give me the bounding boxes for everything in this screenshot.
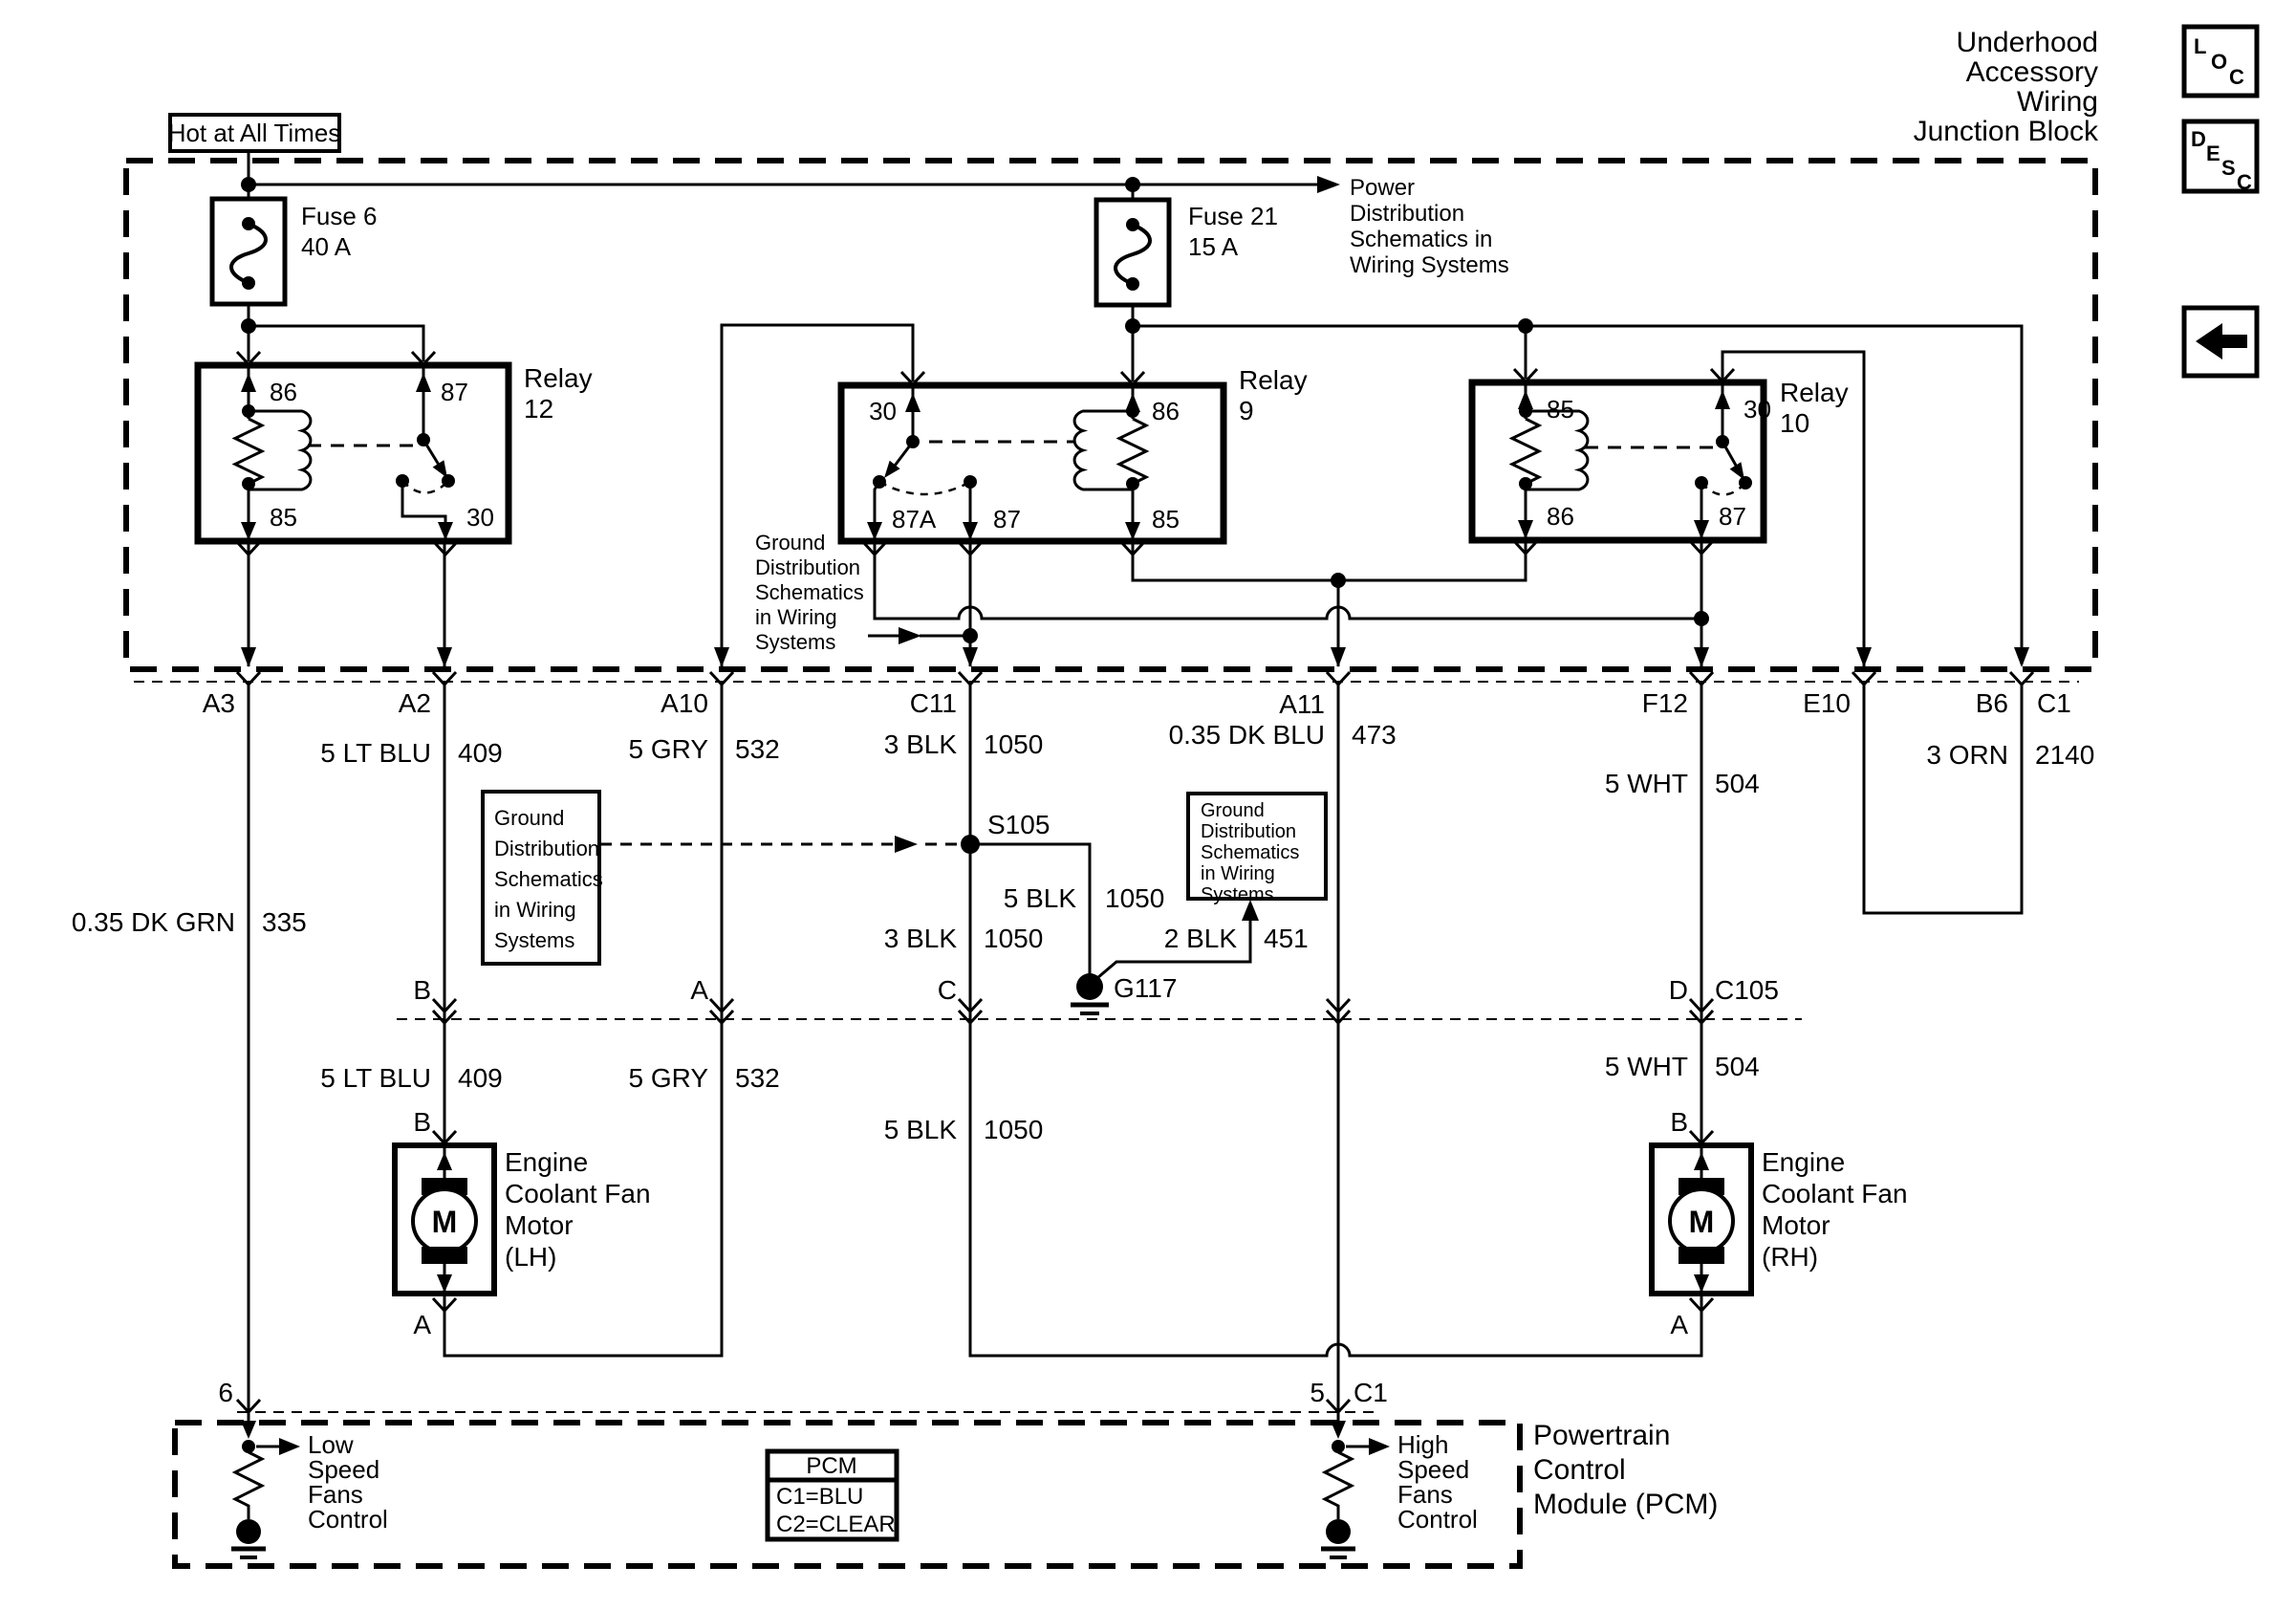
row2-a: A [690, 977, 708, 1004]
wire-1050-color-upper: 3 BLK [884, 731, 957, 758]
fan-rh-pin-a: A [1670, 1312, 1688, 1338]
pcm-high-ground-symbol [1321, 1519, 1355, 1557]
power-note-line3: Schematics in [1350, 228, 1492, 251]
jb-ground-note-line5: Systems [755, 632, 835, 653]
fuse21-symbol [1116, 225, 1150, 284]
wire-1050-3blk-id-lower: 1050 [984, 925, 1043, 952]
wire-504-id-lower: 504 [1715, 1054, 1760, 1080]
row2-c105: C105 [1715, 977, 1779, 1004]
jb-ground-note-line1: Ground [755, 533, 825, 554]
row1-c11: C11 [910, 690, 957, 717]
wire-451-id: 451 [1264, 925, 1309, 952]
row1-c1: C1 [2037, 690, 2071, 717]
pcm-high-line1: High [1397, 1432, 1448, 1457]
fan-lh-motor-m: M [432, 1207, 458, 1237]
desc-icon-letter-d: D [2191, 127, 2206, 152]
fuse6-symbol [231, 224, 266, 283]
fan-rh-name-line1: Engine [1762, 1149, 1845, 1176]
pcm-low-ground-symbol [231, 1519, 266, 1557]
row1-a10: A10 [661, 690, 708, 717]
power-note-line1: Power [1350, 177, 1415, 200]
s105-label: S105 [987, 812, 1050, 838]
relay9-pin85: 85 [1152, 507, 1180, 532]
ground-box-right-line5: Systems [1201, 885, 1274, 904]
fan-rh-pin-b: B [1670, 1109, 1688, 1136]
power-note-line2: Distribution [1350, 203, 1464, 226]
desc-icon-letter-c: C [2237, 170, 2252, 195]
fan-lh-pin-b: B [413, 1109, 431, 1136]
connector-row-lines [134, 682, 2079, 1412]
relay10-pin30: 30 [1744, 397, 1771, 422]
pcm-low-line3: Fans [308, 1482, 363, 1507]
jb-ground-note-line3: Schematics [755, 582, 864, 603]
wire-1050-5blk-id-lower: 1050 [984, 1117, 1043, 1143]
relay12-name: Relay [524, 365, 593, 392]
ground-box-left-line5: Systems [494, 930, 574, 951]
wire-504-color-upper: 5 WHT [1605, 771, 1688, 797]
pcm-high-line3: Fans [1397, 1482, 1453, 1507]
jb-title-line3: Wiring [2017, 88, 2098, 117]
relay10-pin86: 86 [1547, 504, 1574, 529]
pcm-high-line4: Control [1397, 1507, 1478, 1532]
wire-1050-5blk-color: 5 BLK [1004, 885, 1076, 912]
pcm-legend-c1: C1=BLU [776, 1486, 863, 1509]
power-note-line4: Wiring Systems [1350, 254, 1509, 277]
fan-rh-name-line2: Coolant Fan [1762, 1181, 1908, 1207]
relay9-name: Relay [1239, 367, 1308, 394]
desc-icon-letter-s: S [2221, 156, 2236, 181]
fan-lh-pin-a: A [413, 1312, 431, 1338]
fan-lh-name-line2: Coolant Fan [505, 1181, 651, 1207]
wire-409-id-lower: 409 [458, 1065, 503, 1092]
relay10-pin87: 87 [1719, 504, 1746, 529]
wire-451-color: 2 BLK [1164, 925, 1237, 952]
relay9-num: 9 [1239, 398, 1254, 424]
row1-e10: E10 [1803, 690, 1851, 717]
row2-c: C [938, 977, 957, 1004]
relay10-num: 10 [1780, 410, 1809, 437]
relay12-num: 12 [524, 396, 553, 423]
g117-ground-symbol [1071, 973, 1109, 1013]
ground-box-right-line3: Schematics [1201, 843, 1299, 862]
wire-504-color-lower: 5 WHT [1605, 1054, 1688, 1080]
fuse6-name: Fuse 6 [301, 204, 378, 228]
back-arrow-icon[interactable] [2184, 308, 2257, 376]
relay12-pin30: 30 [466, 505, 494, 530]
pcm-name-line3: Module (PCM) [1533, 1490, 1718, 1519]
fan-rh-name-line3: Motor [1762, 1212, 1830, 1239]
jb-title-line4: Junction Block [1914, 118, 2098, 146]
wire-473-id: 473 [1352, 722, 1397, 749]
row2-d: D [1669, 977, 1688, 1004]
fuse6-rating: 40 A [301, 234, 351, 259]
pcm-low-line4: Control [308, 1507, 388, 1532]
ground-box-left-line4: in Wiring [494, 900, 576, 921]
wire-2140-color: 3 ORN [1926, 742, 2008, 769]
pcm-name-line1: Powertrain [1533, 1422, 1670, 1450]
pcm-legend-title: PCM [806, 1455, 856, 1478]
wire-532-color-upper: 5 GRY [628, 736, 708, 763]
fan-lh-name-line3: Motor [505, 1212, 574, 1239]
ground-box-left-line2: Distribution [494, 838, 599, 859]
wire-532-id-lower: 532 [735, 1065, 780, 1092]
loc-icon-letter-l: L [2194, 34, 2206, 59]
wire-1050-5blk-color-lower: 5 BLK [884, 1117, 957, 1143]
ground-box-left-line1: Ground [494, 808, 564, 829]
pcm-pin6: 6 [218, 1380, 233, 1406]
loc-icon-letter-c: C [2229, 65, 2244, 90]
relay9-pin87a: 87A [892, 507, 936, 532]
ground-box-left-line3: Schematics [494, 869, 603, 890]
relay12-pin87: 87 [441, 380, 468, 404]
relay12-pin86: 86 [270, 380, 297, 404]
fan-lh-name-line4: (LH) [505, 1244, 556, 1271]
g117-label: G117 [1114, 975, 1177, 1002]
pcm-legend-c2: C2=CLEAR [776, 1513, 896, 1536]
row1-f12: F12 [1642, 690, 1688, 717]
pcm-name-line2: Control [1533, 1456, 1626, 1485]
hot-at-all-times-label: Hot at All Times [168, 120, 341, 145]
ground-box-right-line2: Distribution [1201, 822, 1296, 841]
ground-box-right-line1: Ground [1201, 801, 1265, 820]
jb-ground-note-line4: in Wiring [755, 607, 837, 628]
pcm-low-line1: Low [308, 1432, 354, 1457]
wire-532-id-upper: 532 [735, 736, 780, 763]
wire-504-id-upper: 504 [1715, 771, 1760, 797]
jb-ground-note-line2: Distribution [755, 557, 860, 578]
row1-a2: A2 [399, 690, 431, 717]
loc-icon-letter-o: O [2211, 50, 2227, 75]
relay9-pin30: 30 [869, 399, 897, 424]
fuse21-rating: 15 A [1188, 234, 1238, 259]
relay10-name: Relay [1780, 380, 1849, 406]
row1-a11: A11 [1279, 691, 1325, 718]
wire-409-color-lower: 5 LT BLU [320, 1065, 431, 1092]
row1-a3: A3 [203, 690, 235, 717]
wire-335-color: 0.35 DK GRN [72, 909, 235, 936]
ground-box-right-line4: in Wiring [1201, 864, 1275, 883]
wire-2140-id: 2140 [2035, 742, 2094, 769]
relay-links [308, 442, 1715, 447]
wire-1050-3blk-color-lower: 3 BLK [884, 925, 957, 952]
relay9-pin86: 86 [1152, 399, 1180, 424]
wire-1050-id-upper: 1050 [984, 731, 1043, 758]
jb-title-line1: Underhood [1957, 29, 2098, 57]
row1-b6: B6 [1976, 690, 2008, 717]
wire-409-color-upper: 5 LT BLU [320, 740, 431, 767]
desc-icon-letter-e: E [2206, 141, 2220, 166]
fan-rh-motor-m: M [1689, 1207, 1715, 1237]
row2-b: B [413, 977, 431, 1004]
relay12-pin85: 85 [270, 505, 297, 530]
relay9-pin87: 87 [993, 507, 1021, 532]
fan-lh-name-line1: Engine [505, 1149, 588, 1176]
fuse21-name: Fuse 21 [1188, 204, 1278, 228]
wire-335-id: 335 [262, 909, 307, 936]
pcm-low-line2: Speed [308, 1457, 379, 1482]
fan-rh-name-line4: (RH) [1762, 1244, 1818, 1271]
wire-532-color-lower: 5 GRY [628, 1065, 708, 1092]
pcm-high-line2: Speed [1397, 1457, 1469, 1482]
wire-1050-5blk-id: 1050 [1105, 885, 1164, 912]
wiring-diagram-page: Hot at All Times Underhood Accessory Wir… [0, 0, 2296, 1610]
pcm-conn-c1: C1 [1354, 1380, 1388, 1406]
wire-473-color: 0.35 DK BLU [1169, 722, 1325, 749]
wire-409-id-upper: 409 [458, 740, 503, 767]
relay10-pin85: 85 [1547, 397, 1574, 422]
wires [235, 151, 2022, 1519]
jb-title-line2: Accessory [1966, 58, 2098, 87]
pcm-pin5: 5 [1310, 1380, 1325, 1406]
